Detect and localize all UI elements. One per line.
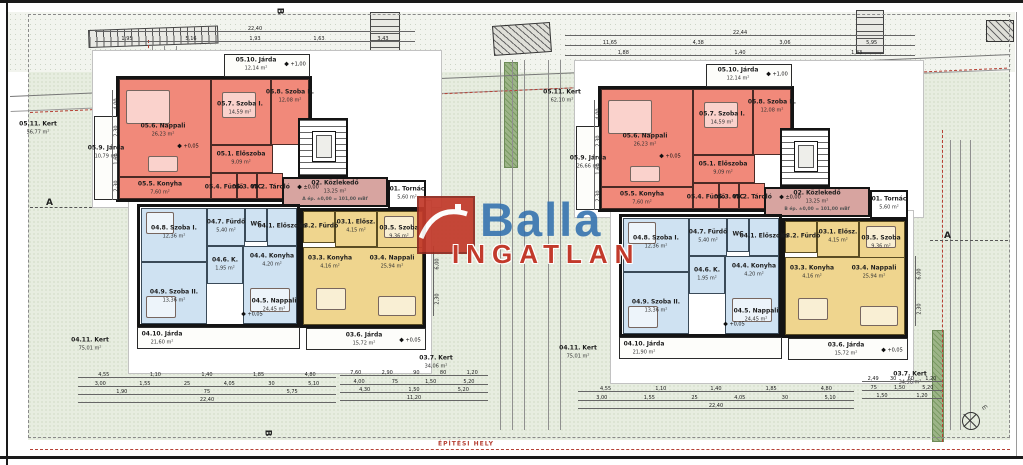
elevation-mark: ◆ +0,05 <box>659 153 681 160</box>
room-label: 05.2. Tároló <box>732 193 772 201</box>
ingatlan-logo-text: INGATLAN <box>452 241 640 267</box>
table-b <box>630 166 660 182</box>
elevator-a <box>312 131 336 162</box>
dimension-row: 1,501,20 <box>862 391 942 399</box>
elevation-mark: ◆ ±0,00 <box>779 194 801 201</box>
dimension-row: 1,881,401,83 <box>565 48 915 56</box>
room-label: 03.1. Elősz.4,15 m² <box>819 229 858 244</box>
elevator-b <box>794 141 818 172</box>
room-label: 03.2. Fürdő <box>782 232 820 240</box>
dimension-row: 22,44 <box>565 28 915 36</box>
room-label: 05.7. Szoba I.14,59 m² <box>217 101 263 116</box>
room-label: 05.10. Járda12,14 m² <box>718 67 759 82</box>
balla-logo-text: Balla <box>480 196 602 243</box>
room-label: 03.6. Járda15,72 m² <box>346 332 383 347</box>
room-label: 04.8. Szoba I.12,36 m² <box>151 225 197 240</box>
room-label: 05.1. Előszoba9,09 m² <box>699 161 748 176</box>
dimension-row: 22,40 <box>78 395 336 403</box>
dimension-row: 3,001,55254,05305,10 <box>578 393 854 401</box>
elevation-mark: ◆ +1,00 <box>284 61 306 68</box>
sofa-b <box>860 306 898 326</box>
elevation-mark: ◆ +0,05 <box>723 321 745 328</box>
room-label: 04.11. Kert75,01 m² <box>71 337 109 352</box>
dimension-row: 3,001,55254,05305,10 <box>78 379 336 387</box>
dimension-row: 4,301,505,20 <box>340 385 488 393</box>
frame-top <box>0 0 1023 3</box>
room-label: 05.8. Szoba II.12,08 m² <box>266 89 314 104</box>
room-label: 04.6. K.1,95 m² <box>694 267 720 282</box>
room-label: 05.7. Szoba I.14,59 m² <box>699 111 745 126</box>
dimension-row: 4,00751,505,20 <box>340 377 488 385</box>
room-label: 04.9. Szoba II.13,36 m² <box>632 299 680 314</box>
room-label: 03.2. Fürdő <box>300 222 338 230</box>
dimension-row: 4,551,101,401,854,80 <box>78 370 336 378</box>
room-label: 04.7. Fürdő5,40 m² <box>207 219 245 234</box>
room-label: 03.4. Nappali25,94 m² <box>370 255 415 270</box>
section-marker-a: A <box>944 231 951 241</box>
elevation-mark: ◆ ±0,00 <box>297 184 319 191</box>
red-boundary-bottom <box>30 449 1010 451</box>
building-site-label: ÉPÍTÉSI HELY <box>438 441 494 448</box>
room-label: 05.6. Nappali26,23 m² <box>141 123 186 138</box>
dimension-row: 2,4930601,20 <box>862 374 942 382</box>
dimension-row: 11,20 <box>340 393 488 401</box>
floor-plan-canvas: 05.10. Járda12,14 m²05.11. Kert56,77 m²0… <box>0 0 1023 465</box>
room-label: B ép. ±0,00 = 101,00 mBf <box>784 207 849 213</box>
room-label: 04.10. Járda21,90 m² <box>624 341 665 356</box>
room-label: 04.11. Kert75,01 m² <box>559 345 597 360</box>
elevation-mark: ◆ +0,05 <box>177 143 199 150</box>
section-marker-b: B <box>262 430 272 437</box>
room-label: 05.2. Tároló <box>250 183 290 191</box>
dimension-row: 7,602,9090801,20 <box>340 368 488 376</box>
room-label: 04.9. Szoba II.13,36 m² <box>150 289 198 304</box>
room-label: 05.1. Előszoba9,09 m² <box>217 151 266 166</box>
room-label: 03.6. Járda15,72 m² <box>828 342 865 357</box>
room-label: 04.4. Konyha4,20 m² <box>250 253 294 268</box>
table-a <box>316 288 346 310</box>
elevation-mark: ◆ +0,05 <box>881 347 903 354</box>
dimension-row: 11,654,383,065,95 <box>565 38 915 46</box>
room-label: 04.4. Konyha4,20 m² <box>732 263 776 278</box>
dimension-row: 22,40 <box>95 24 415 32</box>
room-label: 01. Tornác5,60 m² <box>872 196 907 211</box>
room-label: 03.5. Szoba9,36 m² <box>379 225 418 240</box>
dimension-row: 1,90755,75 <box>78 387 336 395</box>
frame-bottom <box>0 456 1023 459</box>
dimension-column: 4,002,301,602,30 <box>112 90 121 200</box>
room-label: 05.8. Szoba II.12,08 m² <box>748 99 796 114</box>
dimension-column: 6,002,30 <box>915 256 924 326</box>
room-label: 03.4. Nappali25,94 m² <box>852 265 897 280</box>
frame-right <box>1016 12 1017 456</box>
room-label: 03.5. Szoba9,36 m² <box>861 235 900 250</box>
room-label: 03.1. Elősz.4,15 m² <box>337 219 376 234</box>
room-label: 04.7. Fürdő5,40 m² <box>689 229 727 244</box>
sofa-a <box>378 296 416 316</box>
table-b <box>798 298 828 320</box>
sofa-a <box>126 90 170 124</box>
room-label: 05.5. Konyha7,60 m² <box>620 191 664 206</box>
dimension-row: 1,955,161,931,633,43 <box>95 34 415 42</box>
room-label: 05.11. Kert62,10 m² <box>543 89 581 104</box>
room-label: 04.6. K.1,95 m² <box>212 257 238 272</box>
room-label: 03.3. Konyha4,16 m² <box>308 255 352 270</box>
dimension-row: 4,551,101,401,854,80 <box>578 384 854 392</box>
room-label: 05.11. Kert56,77 m² <box>19 121 57 136</box>
dimension-row: 751,505,20 <box>862 383 942 391</box>
north-symbol-icon <box>962 412 980 430</box>
sofa-b <box>608 100 652 134</box>
section-marker-b: B <box>274 8 284 15</box>
elevation-mark: ◆ +0,05 <box>399 337 421 344</box>
room-label: A ép. ±0,00 = 101,00 mBf <box>302 197 367 203</box>
room-label: 05.6. Nappali26,23 m² <box>623 133 668 148</box>
table-a <box>148 156 178 172</box>
dimension-column: 6,002,30 <box>433 246 442 316</box>
room-label: 04.10. Járda21,60 m² <box>142 331 183 346</box>
room-label: 05.5. Konyha7,60 m² <box>138 181 182 196</box>
elevation-mark: ◆ +0,05 <box>241 311 263 318</box>
elevation-mark: ◆ +1,00 <box>766 71 788 78</box>
dimension-row: 22,40 <box>578 401 854 409</box>
section-marker-a: A <box>46 198 53 208</box>
room-label: 05.10. Járda12,14 m² <box>236 57 277 72</box>
room-label: 03.3. Konyha4,16 m² <box>790 265 834 280</box>
